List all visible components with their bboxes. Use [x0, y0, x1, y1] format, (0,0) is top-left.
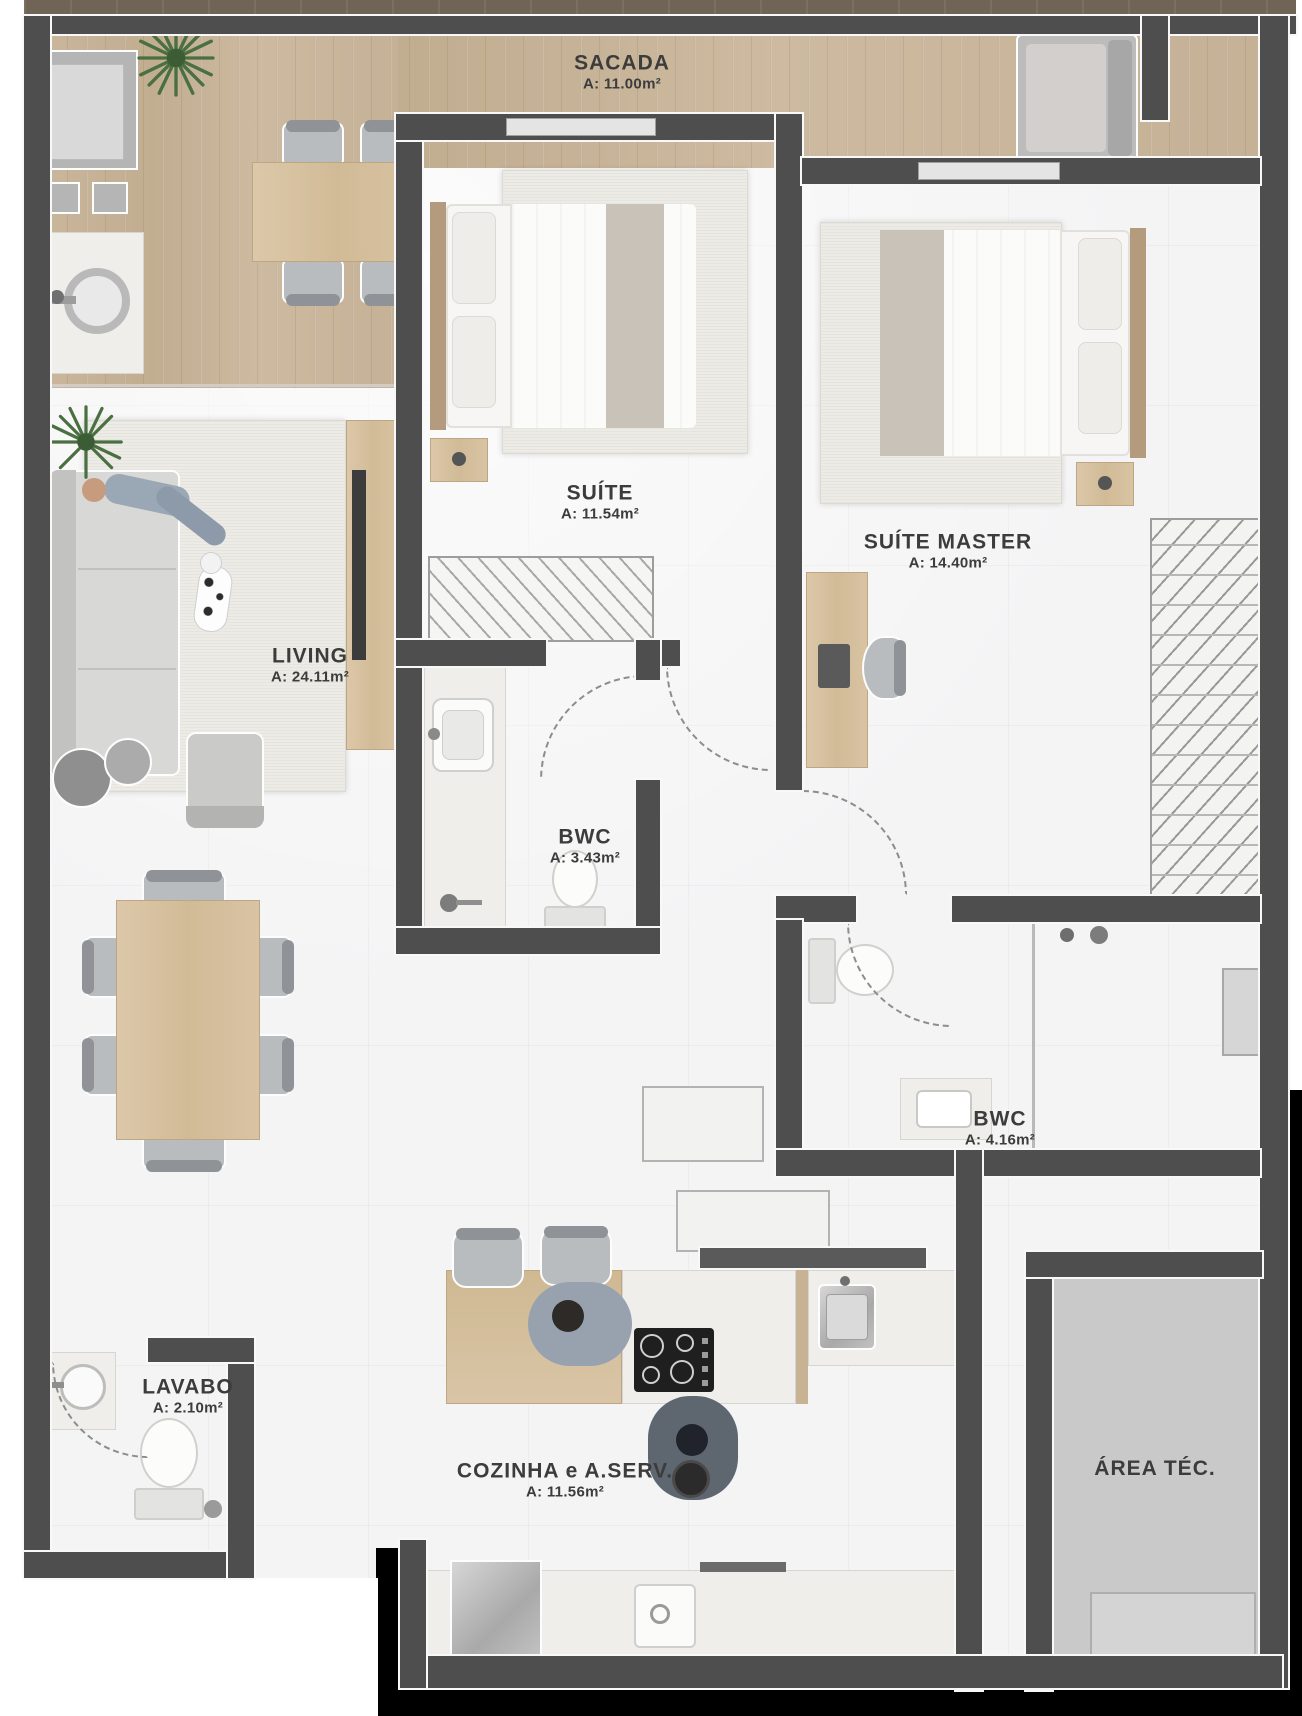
sofa-cushion-line — [78, 568, 176, 570]
wall — [776, 114, 802, 790]
suite-bed-throw — [606, 204, 664, 428]
dog-head — [200, 552, 222, 574]
faucet-icon — [428, 728, 440, 740]
room-label-suite: SUÍTE A: 11.54m² — [561, 481, 639, 522]
wall — [1026, 1252, 1052, 1690]
laundry-sink-ring — [650, 1604, 670, 1624]
wall — [776, 920, 802, 1176]
fridge — [450, 1560, 542, 1660]
barbecue-grill-top — [48, 64, 124, 160]
outside-area — [0, 1578, 378, 1716]
floor-plan: SACADA A: 11.00m² SUÍTE A: 11.54m² SUÍTE… — [0, 0, 1302, 1716]
master-bed-headboard — [1130, 228, 1146, 458]
wall — [148, 1338, 254, 1362]
room-name: SUÍTE — [561, 481, 639, 505]
shower-head-icon — [1090, 926, 1108, 944]
room-area: A: 11.54m² — [561, 506, 639, 523]
room-name: BWC — [550, 825, 620, 849]
toilet-bowl — [140, 1418, 198, 1488]
suite-bed-duvet — [510, 204, 696, 428]
shower-arm — [456, 900, 482, 905]
room-area: A: 24.11m² — [271, 669, 349, 686]
pan — [672, 1460, 710, 1498]
daybed-cushion — [1026, 44, 1106, 152]
wall — [956, 1150, 982, 1690]
sofa-back — [50, 470, 76, 776]
faucet-icon — [50, 290, 64, 304]
coffee-table — [52, 748, 112, 808]
coffee-table — [104, 738, 152, 786]
suite-bed-headboard — [430, 202, 446, 430]
pillow — [452, 316, 496, 408]
bwc-master-basin — [916, 1090, 972, 1128]
room-label-lavabo: LAVABO A: 2.10m² — [142, 1375, 234, 1416]
shelf-strip — [700, 1562, 786, 1572]
room-name: SACADA — [574, 51, 670, 75]
daybed-backrest — [1108, 40, 1132, 156]
room-name: ÁREA TÉC. — [1094, 1457, 1215, 1481]
sofa-cushion-line — [78, 668, 176, 670]
burner — [642, 1366, 660, 1384]
room-label-bwc-suite: BWC A: 3.43m² — [550, 825, 620, 866]
wall — [24, 16, 1296, 34]
room-label-living: LIVING A: 24.11m² — [271, 644, 349, 685]
kitchen-cabinet — [676, 1190, 830, 1252]
wall — [636, 640, 660, 680]
tv — [352, 470, 366, 660]
wall — [396, 640, 546, 666]
burner — [640, 1334, 664, 1358]
room-name: LAVABO — [142, 1375, 234, 1399]
floor-transition — [48, 384, 396, 387]
wall — [396, 114, 422, 954]
wall-pillar — [1142, 16, 1168, 120]
master-bed-throw — [880, 230, 944, 456]
room-label-cozinha: COZINHA e A.SERV. A: 11.56m² — [457, 1459, 673, 1500]
wall — [228, 1338, 254, 1578]
room-area: A: 11.00m² — [574, 76, 670, 93]
wall — [24, 1552, 254, 1578]
pillow — [1078, 342, 1122, 434]
hall-cabinet — [642, 1086, 764, 1162]
wall — [400, 1540, 426, 1688]
room-area: A: 3.43m² — [550, 850, 620, 867]
pillow — [452, 212, 496, 304]
wall — [396, 928, 660, 954]
room-label-area-tec: ÁREA TÉC. — [1094, 1457, 1215, 1481]
room-area: A: 2.10m² — [142, 1400, 234, 1417]
kitchen-half-wall — [700, 1248, 926, 1268]
toilet-tank — [808, 938, 836, 1004]
suite-wardrobe — [428, 556, 654, 642]
lamp-icon — [1098, 476, 1112, 490]
desk-chair — [862, 636, 904, 700]
master-closet — [1150, 518, 1262, 908]
room-label-suite-master: SUÍTE MASTER A: 14.40m² — [864, 530, 1032, 571]
wall — [776, 1150, 1260, 1176]
room-name: SUÍTE MASTER — [864, 530, 1032, 554]
wall — [400, 1656, 1282, 1688]
room-name: BWC — [965, 1107, 1035, 1131]
stool — [540, 1228, 612, 1286]
suite-window — [506, 118, 656, 136]
stool — [452, 1230, 524, 1288]
toilet-tank — [134, 1488, 204, 1520]
kitchen-sink-basin — [826, 1294, 868, 1340]
wall — [1260, 16, 1288, 1688]
room-area: A: 4.16m² — [965, 1132, 1035, 1149]
area-tec-equipment — [1090, 1592, 1256, 1656]
person-on-sofa-head — [82, 478, 106, 502]
trash-bin — [204, 1500, 222, 1518]
duct-box — [1222, 968, 1262, 1056]
pillow — [1078, 238, 1122, 330]
room-name: COZINHA e A.SERV. — [457, 1459, 673, 1483]
kitchen-island-wood-edge — [796, 1270, 808, 1404]
wall — [776, 896, 856, 922]
room-label-sacada: SACADA A: 11.00m² — [574, 51, 670, 92]
laptop — [818, 644, 850, 688]
room-label-bwc-master: BWC A: 4.16m² — [965, 1107, 1035, 1148]
wall — [952, 896, 1260, 922]
burner — [676, 1334, 694, 1352]
faucet-icon — [840, 1276, 850, 1286]
burner — [670, 1360, 694, 1384]
master-window — [918, 162, 1060, 180]
room-area: A: 11.56m² — [457, 1484, 673, 1501]
room-area: A: 14.40m² — [864, 555, 1032, 572]
dining-table — [116, 900, 260, 1140]
shower-head-icon — [1060, 928, 1074, 942]
wall — [24, 16, 50, 1578]
armchair-back — [186, 806, 264, 828]
room-name: LIVING — [271, 644, 349, 668]
cooktop-module — [46, 182, 80, 214]
wall — [1026, 1252, 1262, 1277]
bwc-suite-basin — [442, 710, 484, 760]
chair — [282, 258, 344, 304]
lamp-icon — [452, 452, 466, 466]
sink-module — [92, 182, 128, 214]
person-sitting-head — [552, 1300, 584, 1332]
cooktop-knobs — [702, 1334, 708, 1386]
person-cooking-head — [676, 1424, 708, 1456]
